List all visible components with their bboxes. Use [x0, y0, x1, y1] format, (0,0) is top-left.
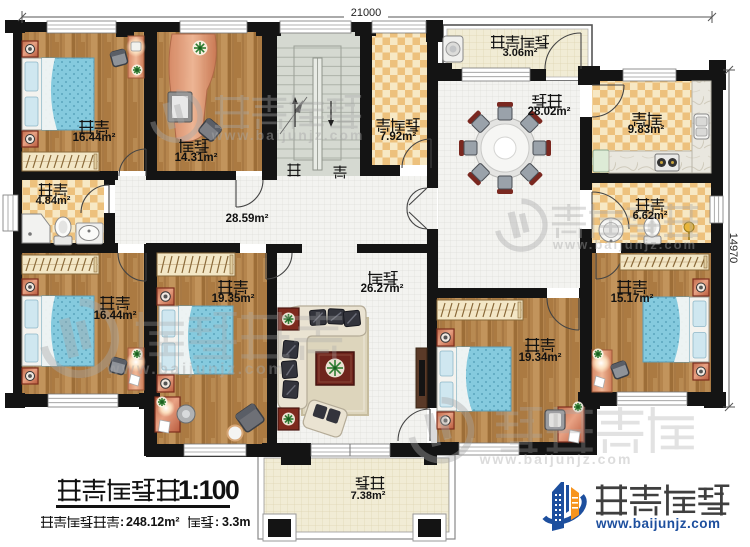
svg-text:14.31m²: 14.31m²	[175, 152, 218, 164]
svg-text:16.44m²: 16.44m²	[73, 132, 116, 144]
svg-text:9.83m²: 9.83m²	[628, 124, 665, 136]
svg-text:15.17m²: 15.17m²	[611, 293, 654, 305]
svg-text:14970: 14970	[727, 233, 739, 264]
svg-text:www.baijunjz.com: www.baijunjz.com	[106, 361, 285, 378]
svg-text:3.06m²: 3.06m²	[503, 47, 538, 59]
svg-text:1:100: 1:100	[178, 475, 239, 505]
svg-text:www.baijunjz.com: www.baijunjz.com	[552, 237, 697, 252]
svg-text:28.59m²: 28.59m²	[226, 213, 269, 225]
svg-text:19.34m²: 19.34m²	[519, 352, 562, 364]
svg-text:www.baijunjz.com: www.baijunjz.com	[595, 516, 721, 531]
svg-text:248.12m²: 248.12m²	[126, 515, 180, 529]
svg-text:26.27m²: 26.27m²	[361, 283, 404, 295]
svg-text:19.35m²: 19.35m²	[212, 293, 255, 305]
svg-text::: :	[120, 515, 124, 529]
svg-text:16.44m²: 16.44m²	[94, 310, 137, 322]
svg-text:3.3m: 3.3m	[222, 515, 251, 529]
svg-text:6.62m²: 6.62m²	[633, 210, 668, 222]
svg-text:7.92m²: 7.92m²	[380, 131, 417, 143]
svg-text::: :	[215, 515, 219, 529]
svg-text:www.baijunjz.com: www.baijunjz.com	[479, 451, 633, 467]
svg-text:4.84m²: 4.84m²	[36, 195, 71, 207]
svg-text:21000: 21000	[351, 7, 382, 19]
svg-text:28.02m²: 28.02m²	[528, 106, 571, 118]
svg-text:www.baijunjz.com: www.baijunjz.com	[211, 127, 365, 143]
svg-text:7.38m²: 7.38m²	[351, 490, 386, 502]
